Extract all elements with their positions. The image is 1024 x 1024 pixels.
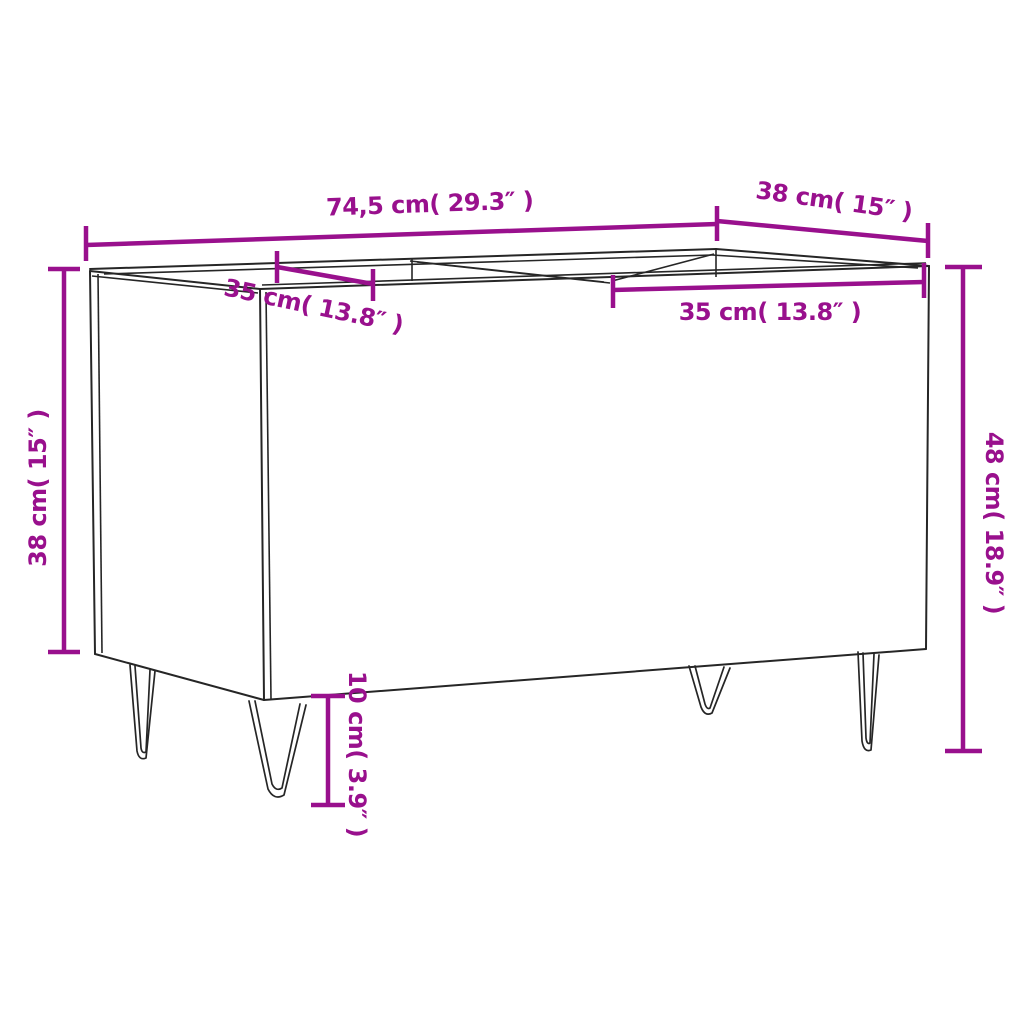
dim-width-top-label: 74,5 cm( 29.3″ ): [326, 186, 534, 221]
dim-depth-top: 38 cm( 15″ ): [717, 176, 928, 258]
dim-leg-height-label: 10 cm( 3.9″ ): [343, 671, 371, 837]
dimension-diagram: 74,5 cm( 29.3″ ) 38 cm( 15″ ) 35 cm( 13.…: [0, 0, 1024, 1024]
dim-width-top: 74,5 cm( 29.3″ ): [86, 186, 717, 261]
dim-height-right: 48 cm( 18.9″ ): [945, 267, 1008, 751]
dim-compartment-right-label: 35 cm( 13.8″ ): [679, 298, 862, 326]
dim-height-left: 38 cm( 15″ ): [24, 269, 80, 652]
diagram-svg: 74,5 cm( 29.3″ ) 38 cm( 15″ ) 35 cm( 13.…: [0, 0, 1024, 1024]
leg-back-right: [689, 666, 730, 714]
dim-height-right-label: 48 cm( 18.9″ ): [980, 432, 1008, 615]
leg-front-left: [249, 701, 306, 797]
dim-leg-height: 10 cm( 3.9″ ): [311, 671, 371, 837]
dim-height-left-label: 38 cm( 15″ ): [24, 409, 52, 567]
leg-back-left: [130, 665, 155, 759]
leg-front-right: [858, 652, 879, 751]
dim-depth-top-label: 38 cm( 15″ ): [754, 176, 914, 226]
hairpin-legs: [130, 652, 879, 797]
